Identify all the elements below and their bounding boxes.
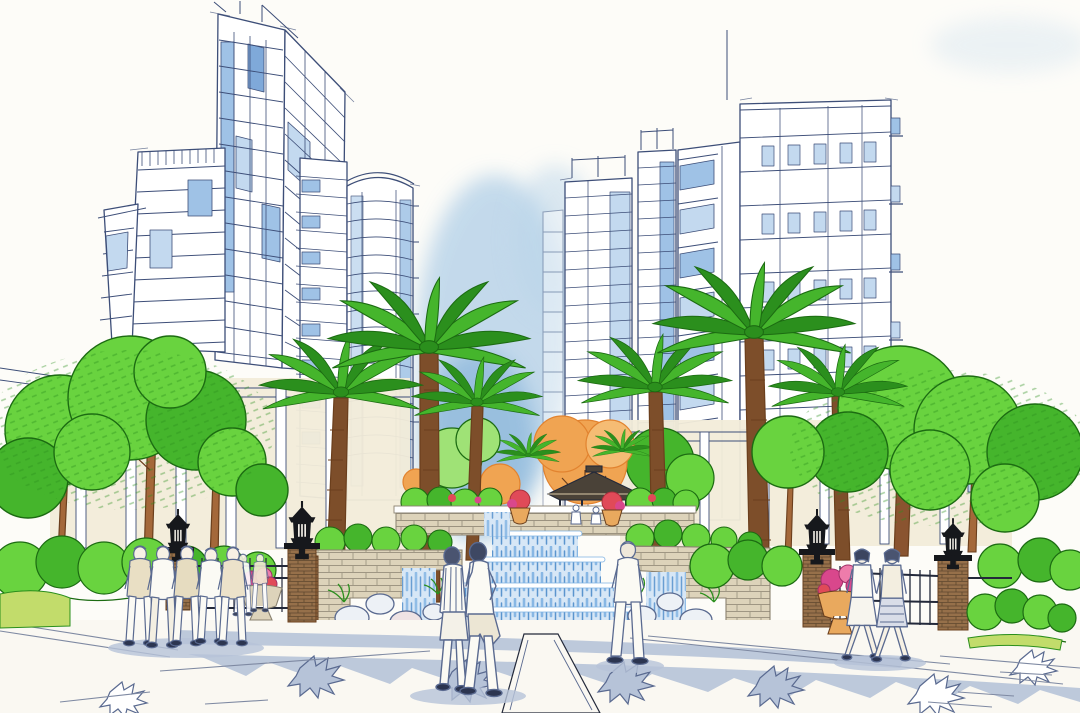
woman-hips (440, 612, 468, 640)
left-grass-bed (0, 591, 70, 628)
shadow-pool (596, 659, 664, 673)
man-head (470, 543, 487, 562)
glass-panel (262, 204, 280, 262)
woman-head (444, 547, 460, 565)
glass-panel (106, 232, 128, 271)
rendering-canvas (0, 0, 1080, 713)
plaza-ground (0, 612, 1080, 713)
terrace-coping (394, 506, 696, 513)
glass-panel (188, 180, 212, 216)
glass-panel (150, 230, 172, 268)
left-mid-block (128, 148, 225, 352)
architectural-rendering: Marker-and-watercolor rendering of a res… (0, 0, 1080, 713)
